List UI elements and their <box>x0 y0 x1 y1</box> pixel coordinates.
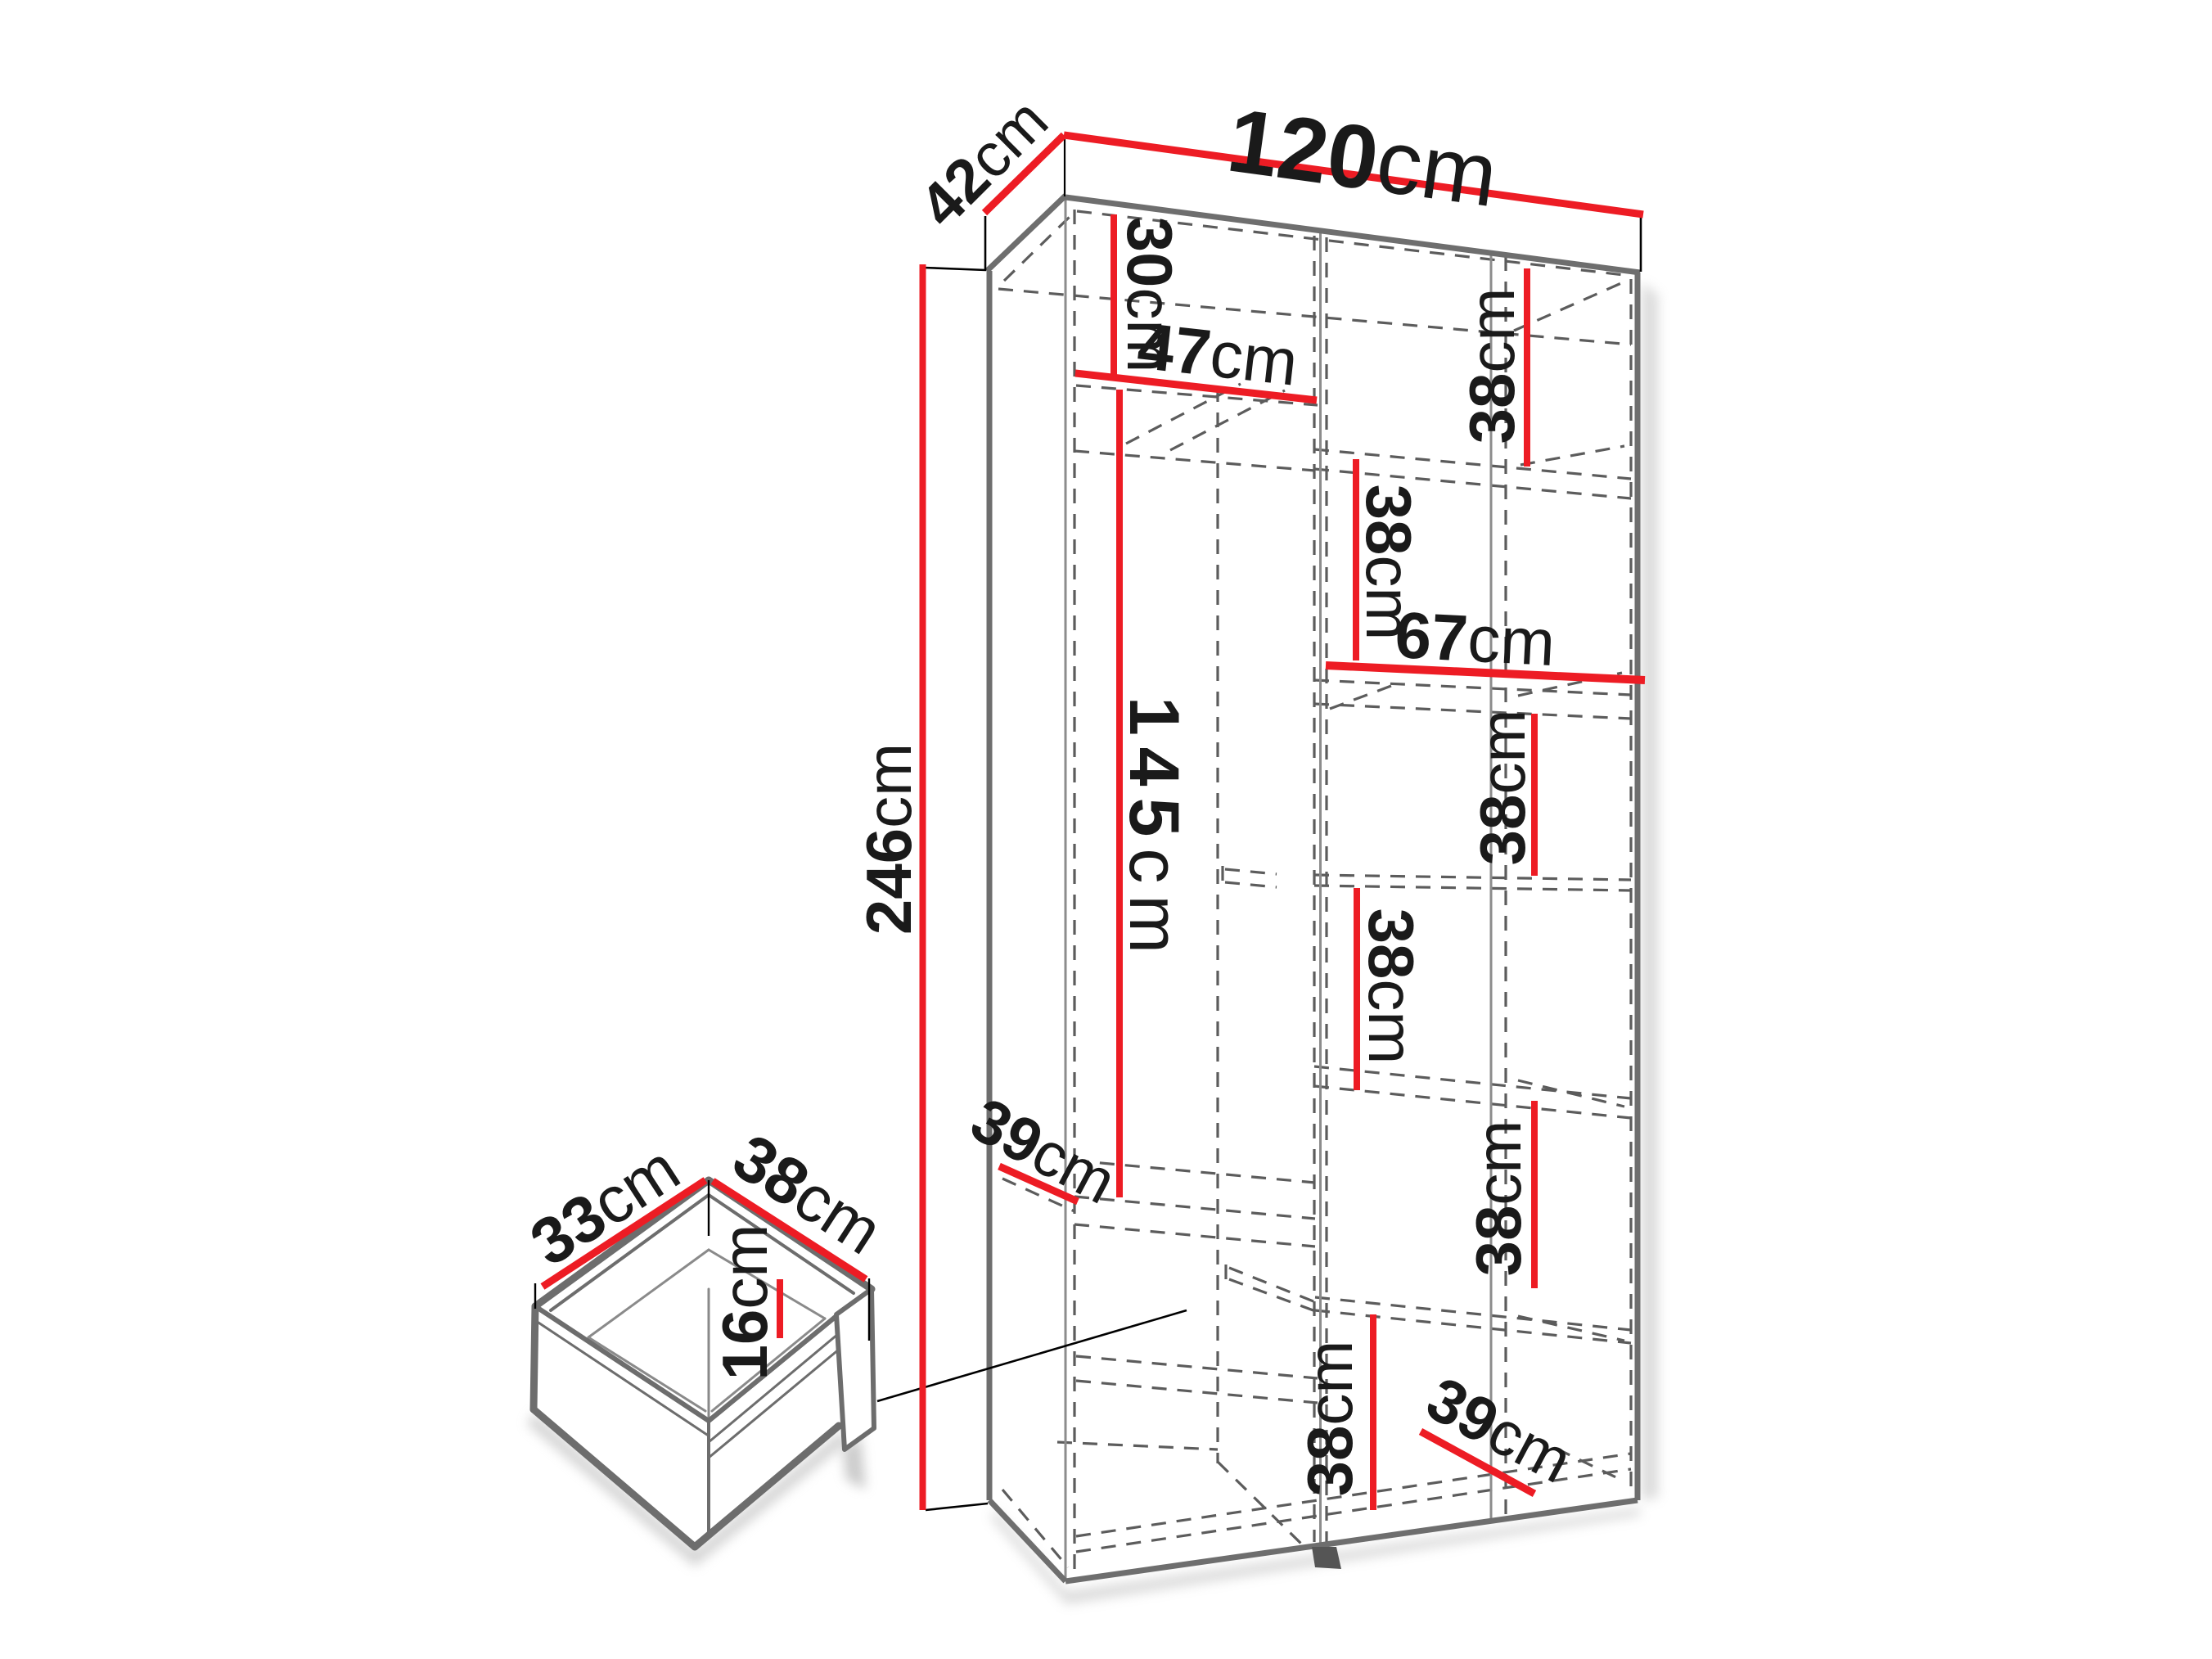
svg-text:38cm: 38cm <box>1462 1120 1534 1277</box>
svg-text:246cm: 246cm <box>853 743 925 935</box>
svg-text:38cm: 38cm <box>1456 288 1528 444</box>
svg-text:67cm: 67cm <box>1393 598 1557 679</box>
svg-text:16cm: 16cm <box>709 1224 781 1381</box>
svg-text:38cm: 38cm <box>1355 908 1427 1065</box>
svg-text:38cm: 38cm <box>1466 710 1538 866</box>
svg-text:38cm: 38cm <box>1294 1341 1366 1497</box>
svg-text:145cm: 145cm <box>1115 697 1193 965</box>
